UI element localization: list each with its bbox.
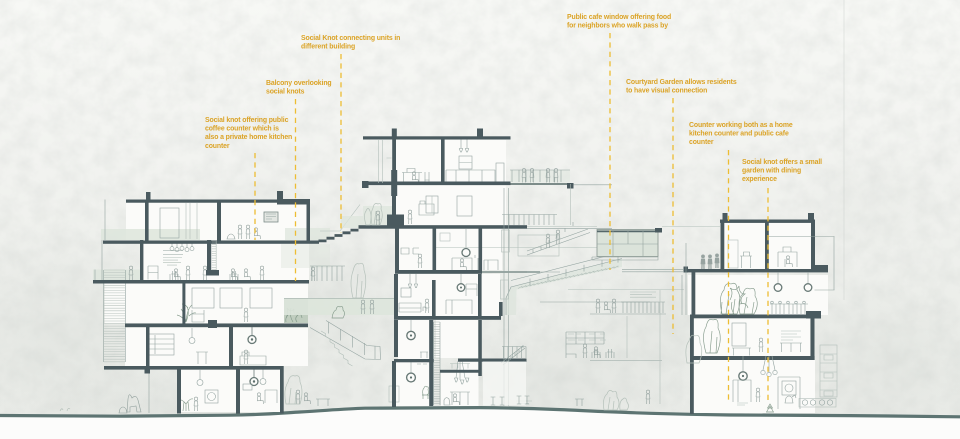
svg-text:garden with dining: garden with dining (742, 168, 801, 175)
svg-text:Counter working both as a home: Counter working both as a home (689, 122, 793, 129)
svg-text:coffee counter which is: coffee counter which is (205, 126, 279, 133)
svg-text:also a private home kitchen: also a private home kitchen (205, 134, 292, 141)
svg-text:kitchen counter and public caf: kitchen counter and public cafe (689, 131, 789, 138)
svg-text:counter: counter (205, 143, 230, 150)
svg-text:counter: counter (689, 139, 714, 146)
svg-text:Balcony overlooking: Balcony overlooking (266, 80, 332, 87)
svg-text:Public cafe window offering fo: Public cafe window offering food (567, 14, 671, 21)
svg-text:Social Knot connecting units i: Social Knot connecting units in (301, 35, 400, 42)
svg-text:Courtyard Garden allows reside: Courtyard Garden allows residents (626, 79, 737, 86)
svg-text:for neighbors who walk pass by: for neighbors who walk pass by (567, 23, 668, 30)
svg-text:Social knot offers a small: Social knot offers a small (742, 159, 822, 166)
svg-text:Social knot offering public: Social knot offering public (205, 117, 289, 124)
svg-text:to have visual connection: to have visual connection (626, 88, 707, 95)
svg-text:experience: experience (742, 176, 777, 183)
svg-text:different building: different building (301, 44, 355, 51)
svg-text:social knots: social knots (266, 89, 305, 96)
